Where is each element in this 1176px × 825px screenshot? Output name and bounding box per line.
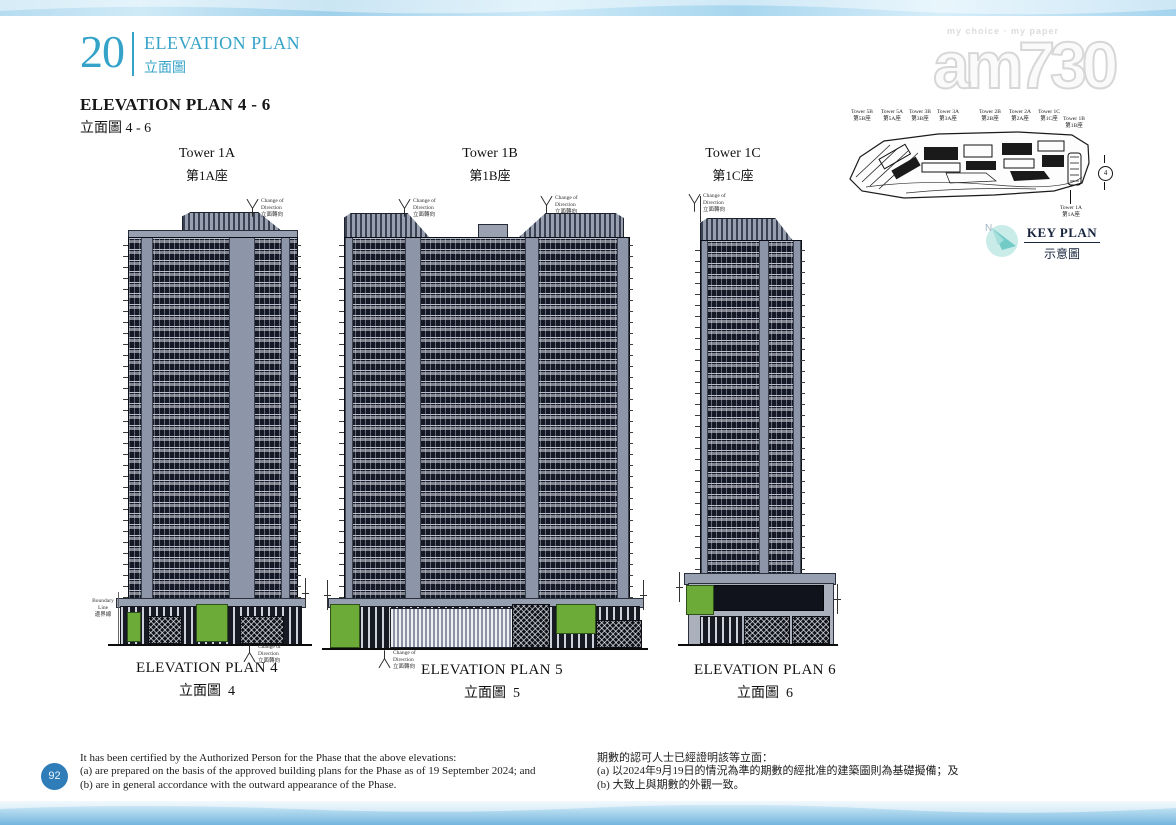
tower-1b-roof-right: [518, 213, 624, 238]
tower-1c-balcony-ticks-right: [800, 250, 805, 575]
tower-1c-facade: [700, 240, 802, 577]
section-number: 20: [80, 30, 124, 74]
tower-1c-balcony-ticks-left: [695, 250, 700, 575]
elevation-plan-4-caption: ELEVATION PLAN 4 立面圖 4: [97, 660, 317, 700]
section-header: 20 ELEVATION PLAN 立面圖: [80, 30, 300, 77]
elevation-plan-6-caption: ELEVATION PLAN 6 立面圖 6: [655, 662, 875, 702]
top-wave-border: [0, 0, 1176, 16]
keyplan-tick-top: [1104, 155, 1105, 163]
tower-1b-name: Tower 1B 第1B座: [430, 146, 550, 184]
north-compass-icon: N: [981, 219, 1021, 264]
tower-1a-name: Tower 1A 第1A座: [147, 146, 267, 184]
certification-text-en: It has been certified by the Authorized …: [80, 752, 595, 792]
tower-1c-dark-band: [700, 585, 824, 611]
header-divider: [132, 32, 134, 76]
keyplan-label-tower-2b: Tower 2B第2B座: [974, 109, 1006, 123]
tower-1b-green-panel-left: [330, 604, 360, 648]
keyplan-title-zh: 示意圖: [1024, 245, 1100, 262]
keyplan-label-tower-5b: Tower 5B第5B座: [846, 109, 878, 123]
tower-1c-roof: [700, 218, 794, 242]
elevation-plan-5-caption: ELEVATION PLAN 5 立面圖 5: [382, 662, 602, 702]
section-title-zh: 立面圖: [144, 57, 300, 77]
am730-watermark: my choice · my paper am730: [933, 26, 1173, 95]
tower-1a-lattice-right: [240, 616, 284, 644]
tower-1a-green-panel-left: [127, 612, 141, 642]
tower-1b-podium-fins: [390, 608, 514, 648]
tower-1a-lattice-left: [148, 616, 182, 644]
keyplan-label-tower-2a: Tower 2A第2A座: [1004, 109, 1036, 123]
boundary-line-label: Boundary Line 邊界線: [88, 598, 118, 619]
tower-1b-level-mark-left: [327, 580, 328, 610]
tower-1c-podium-glazing: [700, 616, 742, 644]
certification-text-zh: 期數的認可人士已經證明該等立面： (a) 以2024年9月19日的情況為準的期數…: [597, 752, 1117, 792]
keyplan-title-en: KEY PLAN: [1024, 225, 1100, 243]
change-of-direction-annotation: Change of Direction立面轉向: [246, 198, 291, 219]
tower-1c-lattice-right: [792, 616, 830, 644]
tower-1b-lattice-center: [512, 604, 550, 648]
keyplan-label-tower-1a: Tower 1A第1A座: [1052, 205, 1090, 219]
tower-1a-balcony-ticks-left: [123, 245, 128, 598]
svg-text:N: N: [985, 223, 992, 234]
keyplan-title: KEY PLAN 示意圖: [1024, 225, 1100, 262]
page-heading: ELEVATION PLAN 4 - 6 立面圖 4 - 6: [80, 95, 271, 137]
key-plan-drawing: [846, 127, 1094, 207]
tower-1c-green-panel: [686, 585, 714, 615]
change-of-direction-arrow-icon: [540, 195, 553, 214]
brochure-page: 20 ELEVATION PLAN 立面圖 ELEVATION PLAN 4 -…: [0, 0, 1176, 825]
tower-1c-level-mark-right: [837, 584, 838, 614]
tower-1c-ground-line: [678, 644, 838, 646]
change-of-direction-annotation: Change of Direction立面轉向: [398, 198, 443, 219]
tower-1c-lattice-left: [744, 616, 790, 644]
keyplan-tick-bottom: [1104, 182, 1105, 190]
tower-1a-balcony-ticks-right: [296, 245, 301, 598]
change-of-direction-arrow-icon: [688, 193, 701, 212]
page-heading-en: ELEVATION PLAN 4 - 6: [80, 95, 271, 115]
change-of-direction-annotation: Change of Direction立面轉向: [540, 195, 585, 216]
bottom-wave-border: [0, 801, 1176, 825]
tower-1c-name: Tower 1C 第1C座: [673, 146, 793, 184]
change-of-direction-arrow-icon: [246, 198, 259, 217]
tower-1b-facade: [344, 237, 630, 602]
change-of-direction-arrow-icon: [398, 198, 411, 217]
tower-1b-balcony-ticks-left: [339, 245, 344, 598]
keyplan-marker-4: 4: [1098, 166, 1113, 181]
keyplan-label-tower-3a: Tower 3A第3A座: [932, 109, 964, 123]
tower-1b-green-panel-right: [556, 604, 596, 634]
tower-1b-lattice-right: [596, 620, 642, 648]
tower-1c-level-mark-left: [679, 572, 680, 602]
tower-1b-ground-line: [322, 648, 648, 650]
section-title-en: ELEVATION PLAN: [144, 30, 300, 54]
change-of-direction-annotation: Change of Direction立面轉向: [688, 193, 733, 214]
tower-1b-balcony-ticks-right: [628, 245, 633, 598]
watermark-logo: am730: [933, 36, 1173, 95]
tower-1a-level-mark: [305, 578, 306, 608]
tower-1a-green-panel-center: [196, 604, 228, 642]
boundary-line-mark: [118, 592, 119, 644]
page-heading-zh: 立面圖 4 - 6: [80, 117, 271, 137]
tower-1a-facade: [128, 237, 298, 602]
tower-1b-level-mark-right: [643, 580, 644, 610]
keyplan-leader-line: [1070, 190, 1071, 204]
page-number-badge: 92: [41, 763, 68, 790]
